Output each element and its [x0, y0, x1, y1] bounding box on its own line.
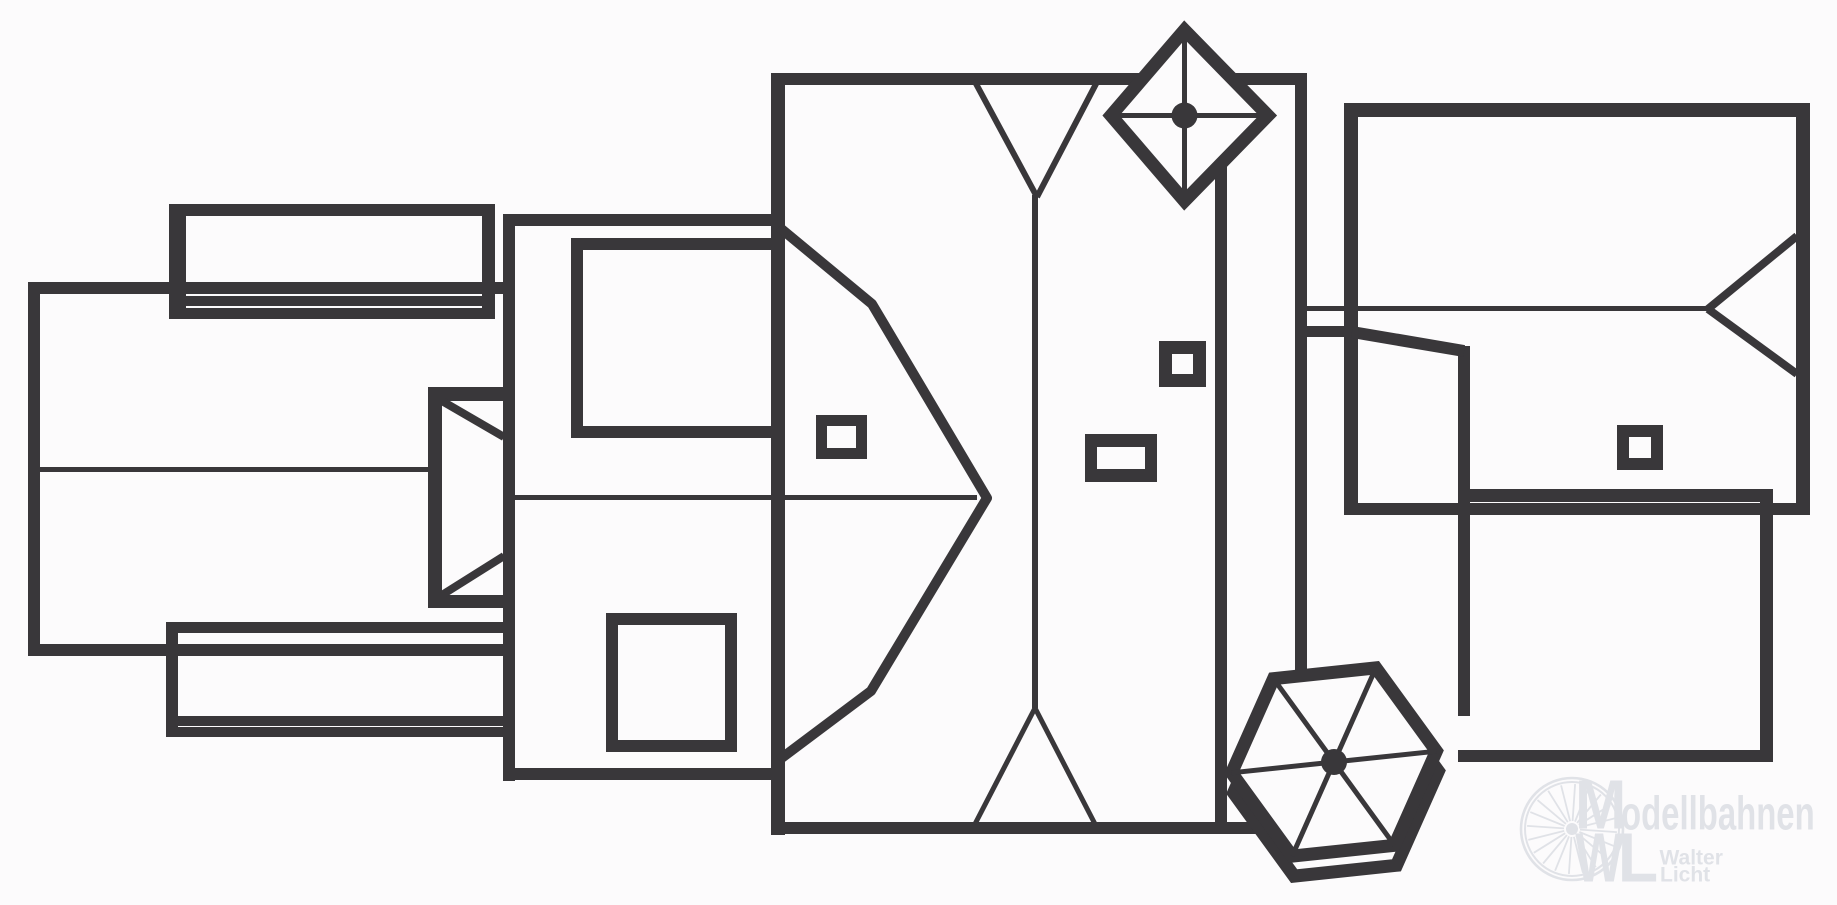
svg-text:odellbahnen: odellbahnen	[1621, 787, 1815, 840]
svg-text:W: W	[1575, 818, 1623, 896]
svg-text:Licht: Licht	[1660, 864, 1710, 887]
